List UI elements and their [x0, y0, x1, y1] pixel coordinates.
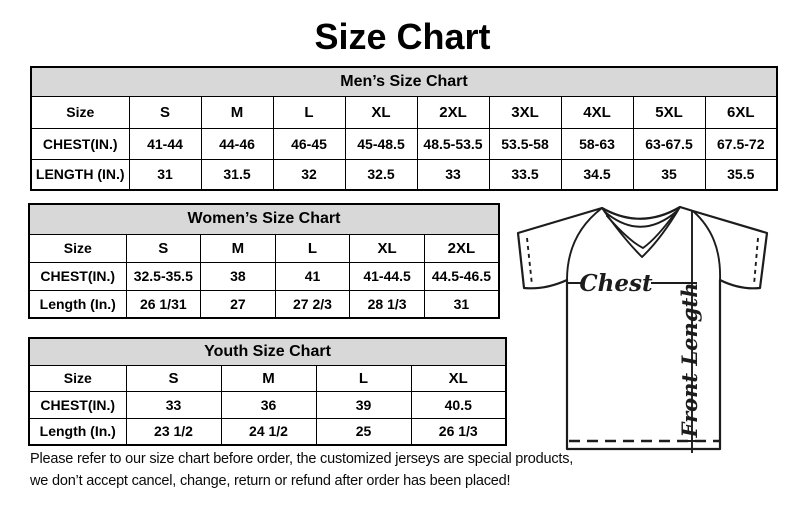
- front-length-label: Front Length: [677, 283, 702, 439]
- youth-size-table-row-1-value-3: 26 1/3: [411, 418, 506, 445]
- youth-size-table-size-xl: XL: [411, 365, 506, 391]
- youth-size-table-row-1-value-1: 24 1/2: [221, 418, 316, 445]
- left-cuff-stitch-line: [527, 238, 532, 285]
- womens-size-table-size-l: L: [275, 234, 350, 262]
- mens-size-table-row-0-value-1: 44-46: [201, 128, 273, 159]
- page-title: Size Chart: [0, 16, 805, 58]
- mens-size-table-row-1-value-3: 32.5: [345, 159, 417, 190]
- youth-size-table-row-1-value-2: 25: [316, 418, 411, 445]
- mens-size-table-row-0-value-4: 48.5-53.5: [417, 128, 489, 159]
- mens-size-table-size-l: L: [273, 96, 345, 128]
- womens-size-table-size-2xl: 2XL: [424, 234, 499, 262]
- mens-size-table-row-0-value-7: 63-67.5: [633, 128, 705, 159]
- womens-size-table-row-1-value-1: 27: [201, 290, 276, 318]
- tshirt-icon: Chest Front Length: [505, 192, 805, 492]
- womens-size-table-row-1-value-4: 31: [424, 290, 499, 318]
- mens-size-table: Men’s Size ChartSizeSMLXL2XL3XL4XL5XL6XL…: [30, 66, 778, 191]
- chest-label: Chest: [579, 270, 653, 297]
- youth-size-table-grid: Youth Size ChartSizeSMLXLCHEST(IN.)33363…: [28, 337, 507, 446]
- mens-size-table-size-label: Size: [31, 96, 129, 128]
- mens-size-table-row-0-value-8: 67.5-72: [705, 128, 777, 159]
- mens-size-table-header: Men’s Size Chart: [31, 67, 777, 96]
- mens-size-table-grid: Men’s Size ChartSizeSMLXL2XL3XL4XL5XL6XL…: [30, 66, 778, 191]
- mens-size-table-size-5xl: 5XL: [633, 96, 705, 128]
- youth-size-table-size-s: S: [126, 365, 221, 391]
- youth-size-table-row-1-label: Length (In.): [29, 418, 126, 445]
- right-sleeve-seam: [693, 211, 720, 280]
- tshirt-outline: [518, 207, 767, 449]
- youth-size-table: Youth Size ChartSizeSMLXLCHEST(IN.)33363…: [28, 337, 507, 446]
- womens-size-table-row-1-value-3: 28 1/3: [350, 290, 425, 318]
- womens-size-table-header: Women’s Size Chart: [29, 204, 499, 234]
- womens-size-table-row-1-value-2: 27 2/3: [275, 290, 350, 318]
- mens-size-table-row-1-value-8: 35.5: [705, 159, 777, 190]
- womens-size-table-row-0-label: CHEST(IN.): [29, 262, 126, 290]
- youth-size-table-row-0-value-3: 40.5: [411, 391, 506, 418]
- youth-size-table-size-label: Size: [29, 365, 126, 391]
- youth-size-table-row-0-label: CHEST(IN.): [29, 391, 126, 418]
- mens-size-table-size-xl: XL: [345, 96, 417, 128]
- mens-size-table-size-6xl: 6XL: [705, 96, 777, 128]
- mens-size-table-row-1-value-1: 31.5: [201, 159, 273, 190]
- mens-size-table-size-4xl: 4XL: [561, 96, 633, 128]
- womens-size-table: Women’s Size ChartSizeSMLXL2XLCHEST(IN.)…: [28, 203, 500, 319]
- mens-size-table-row-0-value-2: 46-45: [273, 128, 345, 159]
- tshirt-diagram: Chest Front Length: [505, 192, 805, 492]
- womens-size-table-size-s: S: [126, 234, 201, 262]
- right-cuff-stitch-line: [754, 238, 758, 285]
- mens-size-table-row-1-value-6: 34.5: [561, 159, 633, 190]
- womens-size-table-row-0-value-3: 41-44.5: [350, 262, 425, 290]
- mens-size-table-size-2xl: 2XL: [417, 96, 489, 128]
- size-chart-page: Size Chart Men’s Size ChartSizeSMLXL2XL3…: [0, 0, 805, 512]
- youth-size-table-row-0-value-1: 36: [221, 391, 316, 418]
- mens-size-table-row-0-value-6: 58-63: [561, 128, 633, 159]
- youth-size-table-row-0-value-2: 39: [316, 391, 411, 418]
- mens-size-table-row-1-value-4: 33: [417, 159, 489, 190]
- womens-size-table-row-0-value-4: 44.5-46.5: [424, 262, 499, 290]
- womens-size-table-size-label: Size: [29, 234, 126, 262]
- mens-size-table-row-0-value-0: 41-44: [129, 128, 201, 159]
- womens-size-table-row-0-value-1: 38: [201, 262, 276, 290]
- womens-size-table-row-0-value-2: 41: [275, 262, 350, 290]
- youth-size-table-row-1-value-0: 23 1/2: [126, 418, 221, 445]
- mens-size-table-size-3xl: 3XL: [489, 96, 561, 128]
- womens-size-table-size-m: M: [201, 234, 276, 262]
- womens-size-table-row-0-value-0: 32.5-35.5: [126, 262, 201, 290]
- womens-size-table-row-1-label: Length (In.): [29, 290, 126, 318]
- mens-size-table-row-1-value-0: 31: [129, 159, 201, 190]
- mens-size-table-row-1-value-7: 35: [633, 159, 705, 190]
- womens-size-table-grid: Women’s Size ChartSizeSMLXL2XLCHEST(IN.)…: [28, 203, 500, 319]
- youth-size-table-size-m: M: [221, 365, 316, 391]
- mens-size-table-row-0-value-5: 53.5-58: [489, 128, 561, 159]
- youth-size-table-header: Youth Size Chart: [29, 338, 506, 365]
- youth-size-table-size-l: L: [316, 365, 411, 391]
- mens-size-table-size-m: M: [201, 96, 273, 128]
- mens-size-table-size-s: S: [129, 96, 201, 128]
- mens-size-table-row-1-label: LENGTH (IN.): [31, 159, 129, 190]
- mens-size-table-row-1-value-2: 32: [273, 159, 345, 190]
- mens-size-table-row-0-value-3: 45-48.5: [345, 128, 417, 159]
- womens-size-table-row-1-value-0: 26 1/31: [126, 290, 201, 318]
- womens-size-table-size-xl: XL: [350, 234, 425, 262]
- youth-size-table-row-0-value-0: 33: [126, 391, 221, 418]
- mens-size-table-row-1-value-5: 33.5: [489, 159, 561, 190]
- mens-size-table-row-0-label: CHEST(IN.): [31, 128, 129, 159]
